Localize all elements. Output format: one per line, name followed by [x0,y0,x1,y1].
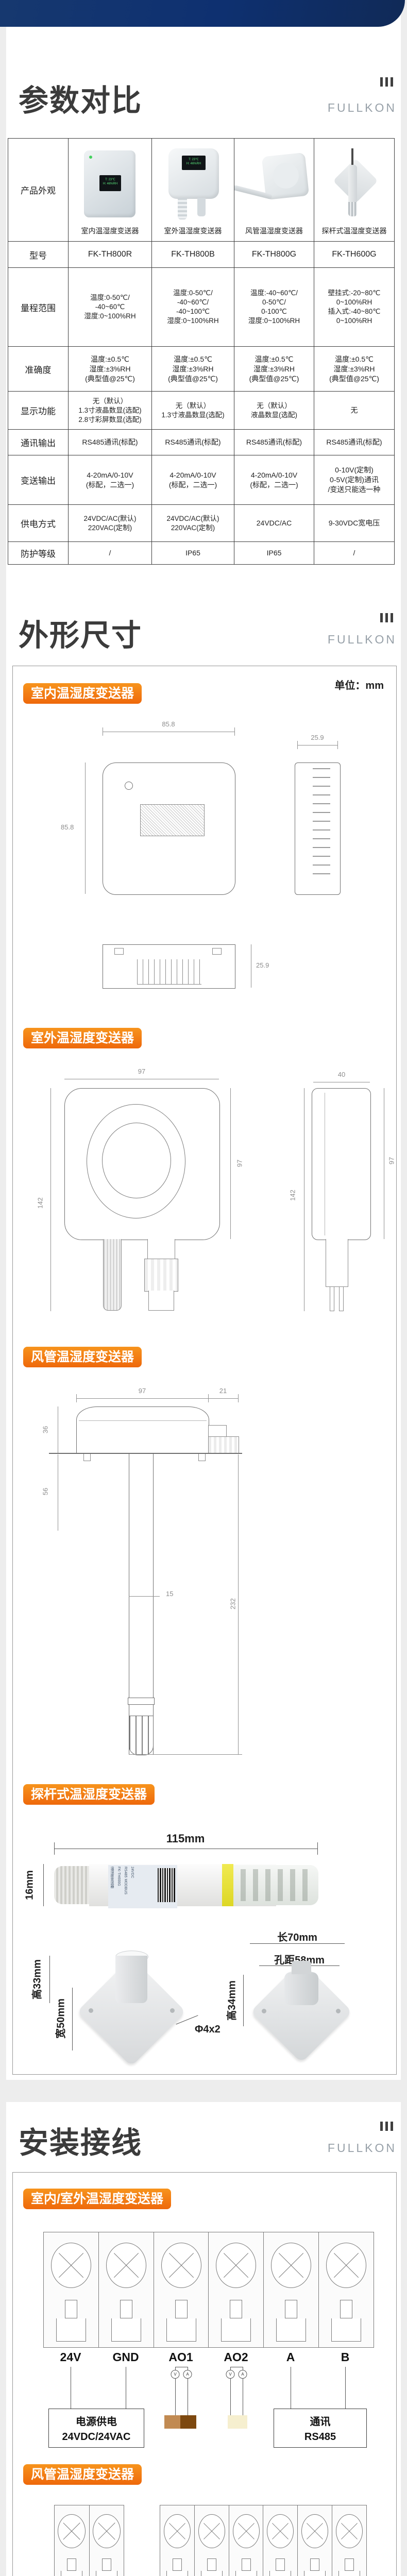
protection-cell: IP65 [234,542,314,565]
row-label: 显示功能 [8,392,69,430]
dim-bracket1-width: 宽50mm [53,1998,67,2039]
terminal-block2-right-clamps [160,2556,367,2576]
power-cell: 24VDC/AC(默认)220VAC(定制) [69,505,152,542]
probe-cap [54,1866,89,1904]
model-cell: FK-TH600G [314,242,395,268]
comm-box: 通讯 RS485 [274,2409,367,2448]
terminal-block2-right-screws [160,2505,367,2557]
badge-rod: 探杆式温湿度变送器 [23,1784,155,1805]
menu-bars-icon [380,613,393,622]
bracket-line [175,2367,188,2367]
dim-tick [337,741,338,749]
dim-line [243,1975,244,2026]
output-cell: 4-20mA/0-10V(标配，二选一) [152,455,234,505]
dim-duct-width: 97 [76,1387,208,1395]
dim-rod-diameter: 16mm [24,1870,36,1900]
dim-line [76,1398,238,1399]
dim-tick [317,1842,318,1855]
terminal-block1-clamps [43,2298,374,2348]
comparison-table: 产品外观 T: 23℃H: 46%RH 室内温湿度变送器 T: [8,138,395,565]
dim-line [313,1082,370,1082]
dim-indoor-side-width: 25.9 [297,734,337,741]
probe-stub [178,198,187,219]
section-title-dimensions: 外形尺寸 [19,611,142,654]
dim-outdoor-height: 142 [37,1197,44,1209]
outdoor-probe [103,1239,122,1311]
badge-duct2: 风管温湿度变送器 [23,2464,142,2485]
range-cell: 壁挂式:-20~80℃0~100%RH插入式:-40~80℃0~100%RH [314,268,395,347]
menu-bars-icon [380,77,393,87]
product-name: 探杆式温湿度变送器 [315,226,393,236]
dim-line [250,1943,345,1944]
dim-tick [238,1394,239,1402]
dim-line [230,1088,231,1239]
table-cell-photo: 风管温湿度变送器 [234,139,314,242]
sensor-cover [233,1865,318,1905]
dim-indoor-height: 85.8 [61,823,74,831]
display-cell: 无（默认）1.3寸液晶数显(选配)2.8寸彩屏数显(选配) [69,392,152,430]
accuracy-cell: 温度:±0.5℃湿度:±3%RH(典型值@25℃) [69,347,152,392]
table-cell-photo: T: 23℃H: 46%RH 室内温湿度变送器 [69,139,152,242]
outdoor-front-view [64,1088,220,1240]
dim-line [297,745,337,745]
inner-ellipse [102,1123,171,1198]
power-box: 电源供电 24VDC/24VAC [48,2409,144,2448]
menu-bars-icon [380,2122,393,2131]
indoor-side-view [295,762,341,895]
product-photo-duct [235,144,313,226]
dim-outdoor-side-height: 142 [289,1190,297,1201]
indoor-bottom-view [103,944,235,989]
terminal-label: AO2 [224,2350,248,2364]
section-title-wiring: 安装接线 [19,2119,142,2162]
gland-bottom [148,1291,174,1311]
display-cell: 无（默认）液晶数显(选配) [234,392,314,430]
dim-tick [103,727,103,736]
bracket-line [230,2367,243,2367]
dim-tick [54,1842,55,1855]
dim-duct-height: 36 [42,1426,49,1433]
gland-nut [144,1259,178,1292]
badge-outdoor: 室外温湿度变送器 [23,1028,142,1048]
dim-line [54,1849,317,1849]
gland-top [147,1239,175,1259]
side-probe [326,1239,348,1287]
bracket2-hole [336,2009,341,2013]
accuracy-cell: 温度:±0.5℃湿度:±3%RH(典型值@25℃) [152,347,234,392]
bracket2-knob [292,1961,311,1974]
dim-outdoor-side-width: 40 [313,1071,370,1078]
led-dot [89,156,92,159]
dim-line [85,762,86,894]
product-photo-outdoor: T: 23℃H: 46%RH [153,144,233,226]
row-label: 量程范围 [8,268,69,347]
badge-indoor: 室内温湿度变送器 [23,683,142,704]
bracket1-socket [115,1956,147,2003]
output-cell: 0-10V(定制)0-5V(定制)通讯/变送只能选一种 [314,455,395,505]
dim-outdoor-height2: 97 [236,1160,244,1167]
dim-probe-length: 232 [229,1598,237,1609]
model-cell: FK-TH800B [152,242,234,268]
dim-line [72,1988,73,2050]
badge-duct: 风管温湿度变送器 [23,1347,142,1367]
dim-duct-flange-down: 56 [42,1488,49,1495]
comm-cell: RS485通讯(标配) [314,430,395,455]
unit-label: 单位：mm [289,677,384,692]
table-cell-photo: 探杆式温湿度变送器 [314,139,395,242]
protection-cell: / [69,542,152,565]
ao1-load-left [164,2415,180,2429]
dim-line [103,732,234,732]
terminal-label: B [341,2350,350,2364]
terminal-block1-screws [43,2232,374,2299]
dim-rod-length: 115mm [129,1832,242,1845]
side-prong [339,1286,344,1311]
dim-line [43,1864,44,1906]
row-label: 型号 [8,242,69,268]
terminal-label: AO1 [168,2350,193,2364]
volt-icon: V [226,2370,235,2379]
ao1-load-right [180,2415,196,2429]
dim-indoor-width: 85.8 [103,720,234,728]
dim-probe-width: 15 [166,1590,173,1598]
amp-icon: A [239,2370,247,2379]
cable [351,148,353,167]
volt-icon: V [171,2370,180,2379]
screen-hatch [140,804,205,836]
flange-clip [83,1454,91,1461]
barcode [158,1868,175,1902]
gland-stub [197,198,206,216]
dim-line [50,1088,51,1311]
dim-line [384,1088,384,1239]
yellow-ring [222,1864,233,1906]
row-label: 变送输出 [8,455,69,505]
row-label: 准确度 [8,347,69,392]
dim-line [129,1596,160,1597]
stem-collar [128,1698,155,1705]
power-cell: 24VDC/AC [234,505,314,542]
clip-tab [212,948,222,955]
dim-line [58,1454,58,1531]
indoor-front-view [103,762,235,895]
protection-cell: / [314,542,395,565]
row-label: 通讯输出 [8,430,69,455]
wire-a [291,2367,291,2409]
duct-housing [76,1406,209,1454]
page: 参数对比 FULLKON 产品外观 T: 23℃H: 46%RH 室内温湿度变送… [0,0,407,2576]
dim-bracket2-height: 高34mm [224,1980,239,2021]
rod-probe-photo: 温湿度变送器 FK-TH600G RS485 MODBUS 24VDC [54,1864,318,1906]
led-hole [125,782,133,790]
wire-gnd [126,2367,126,2409]
display-cell: 无（默认）1.3寸液晶数显(选配) [152,392,234,430]
duct-gland-nut [208,1436,239,1454]
brand-logo: FULLKON [301,101,397,115]
dim-duct-gland: 21 [208,1387,238,1395]
model-cell: FK-TH800R [69,242,152,268]
bracket1-hole [170,2008,175,2013]
probe-cage [348,202,357,216]
table-cell-photo: T: 23℃H: 46%RH 室外温湿度变送器 [152,139,234,242]
baseline [129,1754,242,1755]
brand-logo: FULLKON [301,633,397,647]
clip-tab [114,948,124,955]
duct-gland-neck [208,1425,227,1437]
comm-cell: RS485通讯(标配) [234,430,314,455]
product-photo-indoor: T: 23℃H: 46%RH [70,144,150,226]
dim-line [304,1088,304,1311]
duct-probe-cage [129,1716,154,1755]
protection-cell: IP65 [152,542,234,565]
range-cell: 温度:-40~60℃/0-50℃/0-100℃湿度:0~100%RH [234,268,314,347]
section-title-compare: 参数对比 [19,76,142,120]
outdoor-side-view [312,1088,371,1240]
bracket2-clamp [284,1972,318,2005]
flange-clip [198,1454,206,1461]
dim-line [49,1956,50,2003]
side-prong [330,1286,334,1311]
vent-comb [137,959,201,985]
probe-label-band: 温湿度变送器 FK-TH600G RS485 MODBUS 24VDC [108,1865,177,1908]
dim-line [238,1454,239,1754]
terminal-label: 24V [60,2350,81,2364]
amp-icon: A [183,2370,192,2379]
terminal-block2-left-screws [54,2505,124,2557]
bracket1-hole [89,2008,93,2013]
terminal-label: A [286,2350,295,2364]
product-name: 室内温湿度变送器 [70,226,150,236]
badge-indoor-outdoor: 室内/室外温湿度变送器 [23,2189,171,2209]
product-name: 室外温湿度变送器 [153,226,233,236]
side-vents [313,768,330,876]
model-cell: FK-TH800G [234,242,314,268]
output-cell: 4-20mA/0-10V(标配，二选一) [234,455,314,505]
terminal-label: GND [112,2350,139,2364]
dim-tick [76,1394,77,1402]
power-cell: 9-30VDC宽电压 [314,505,395,542]
brand-logo: FULLKON [301,2141,397,2155]
range-cell: 温度:0-50℃/-40~60℃/-40~100℃湿度:0~100%RH [152,268,234,347]
dim-tick [208,1394,209,1402]
row-label: 产品外观 [8,139,69,242]
output-cell: 4-20mA/0-10V(标配，二选一) [69,455,152,505]
dim-line [58,1406,58,1453]
terminal-block2-left-clamps [54,2556,124,2576]
wire-b [345,2367,346,2409]
product-name: 风管温湿度变送器 [235,226,313,236]
comm-cell: RS485通讯(标配) [152,430,234,455]
dim-indoor-depth: 25.9 [256,961,269,969]
comm-cell: RS485通讯(标配) [69,430,152,455]
duct-probe-stem [129,1454,154,1754]
header-band [0,0,405,27]
accuracy-cell: 温度:±0.5℃湿度:±3%RH(典型值@25℃) [234,347,314,392]
dim-tick [297,741,298,749]
display-cell: 无 [314,392,395,430]
range-cell: 温度:0-50℃/-40~60℃湿度:0~100%RH [69,268,152,347]
dim-tick [234,727,235,736]
dim-outdoor-side-height2: 97 [388,1157,396,1164]
power-cell: 24VDC/AC(默认)220VAC(定制) [152,505,234,542]
dim-line [251,944,251,988]
dim-line [64,1079,219,1079]
accuracy-cell: 温度:±0.5℃湿度:±3%RH(典型值@25℃) [314,347,395,392]
dim-bracket1-height: 高33mm [29,1959,44,1999]
row-label: 防护等级 [8,542,69,565]
bracket2-hole [262,2009,266,2013]
ao2-load [228,2415,247,2429]
dim-bracket1-holes: Φ4x2 [195,2024,221,2036]
row-label: 供电方式 [8,505,69,542]
dim-bracket2-length: 长70mm [250,1929,345,1944]
wire-24v [71,2367,71,2409]
product-photo-rod [315,144,393,226]
dim-outdoor-width: 97 [64,1067,219,1075]
